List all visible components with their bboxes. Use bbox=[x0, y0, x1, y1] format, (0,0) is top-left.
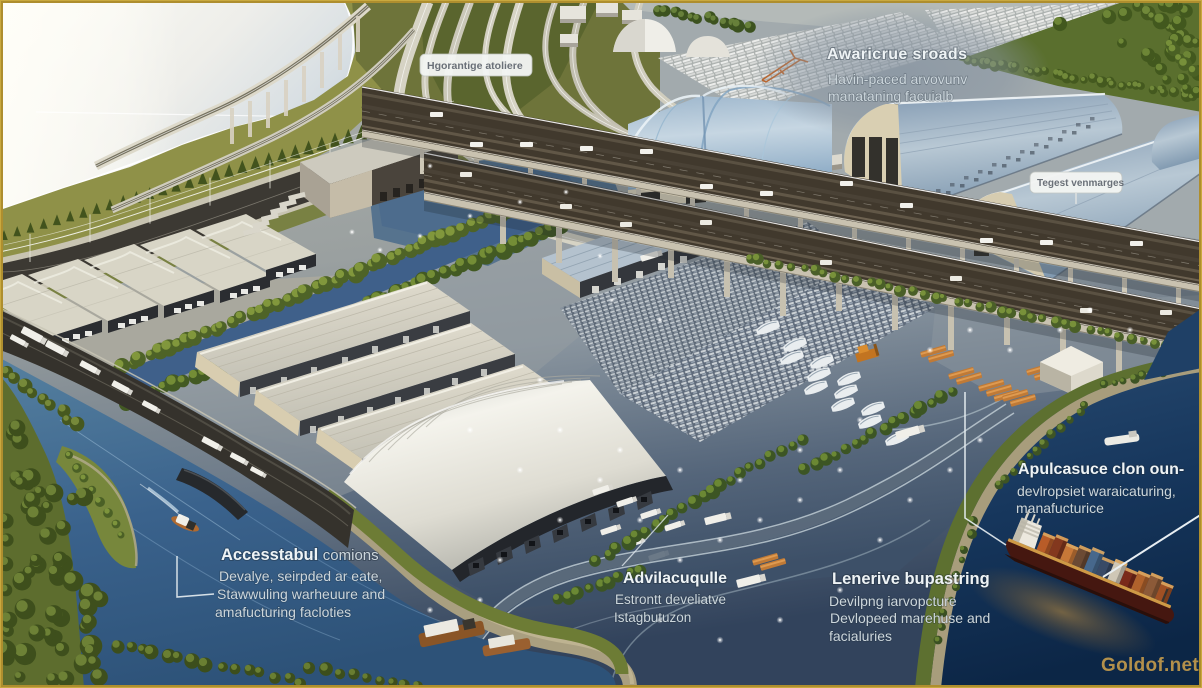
svg-text:Goldof.net: Goldof.net bbox=[1101, 655, 1199, 676]
svg-text:Awaricrue sroads: Awaricrue sroads bbox=[827, 46, 967, 63]
svg-text:Lenerive bupastring: Lenerive bupastring bbox=[832, 570, 990, 588]
svg-text:facialuries: facialuries bbox=[829, 628, 892, 644]
svg-text:Apulcasuce clon oun-: Apulcasuce clon oun- bbox=[1018, 461, 1184, 478]
svg-text:Tegest venmarges: Tegest venmarges bbox=[1037, 178, 1125, 189]
svg-text:Havin-paced arvovunv: Havin-paced arvovunv bbox=[828, 71, 967, 87]
svg-text:manataning facuialb: manataning facuialb bbox=[828, 88, 954, 104]
svg-text:Estrontt develiatve: Estrontt develiatve bbox=[615, 592, 726, 607]
svg-text:Devlopeed marehuse and: Devlopeed marehuse and bbox=[830, 610, 990, 626]
svg-text:amafucturing facloties: amafucturing facloties bbox=[215, 604, 351, 620]
svg-text:Stawwuling warheuure and: Stawwuling warheuure and bbox=[217, 586, 385, 602]
svg-text:Accesstabul comions: Accesstabul comions bbox=[221, 546, 379, 564]
svg-text:Devilpng iarvopcture: Devilpng iarvopcture bbox=[829, 593, 957, 609]
svg-text:Devalye, seirpded ar eate,: Devalye, seirpded ar eate, bbox=[219, 568, 382, 584]
svg-text:manafucturice: manafucturice bbox=[1016, 500, 1104, 516]
svg-text:Advilacuqulle: Advilacuqulle bbox=[623, 570, 727, 587]
svg-text:Istagbutuzon: Istagbutuzon bbox=[614, 610, 691, 625]
svg-text:Hgorantige atoliere: Hgorantige atoliere bbox=[427, 60, 523, 72]
svg-text:devlropsiet waraicaturing,: devlropsiet waraicaturing, bbox=[1017, 483, 1176, 499]
